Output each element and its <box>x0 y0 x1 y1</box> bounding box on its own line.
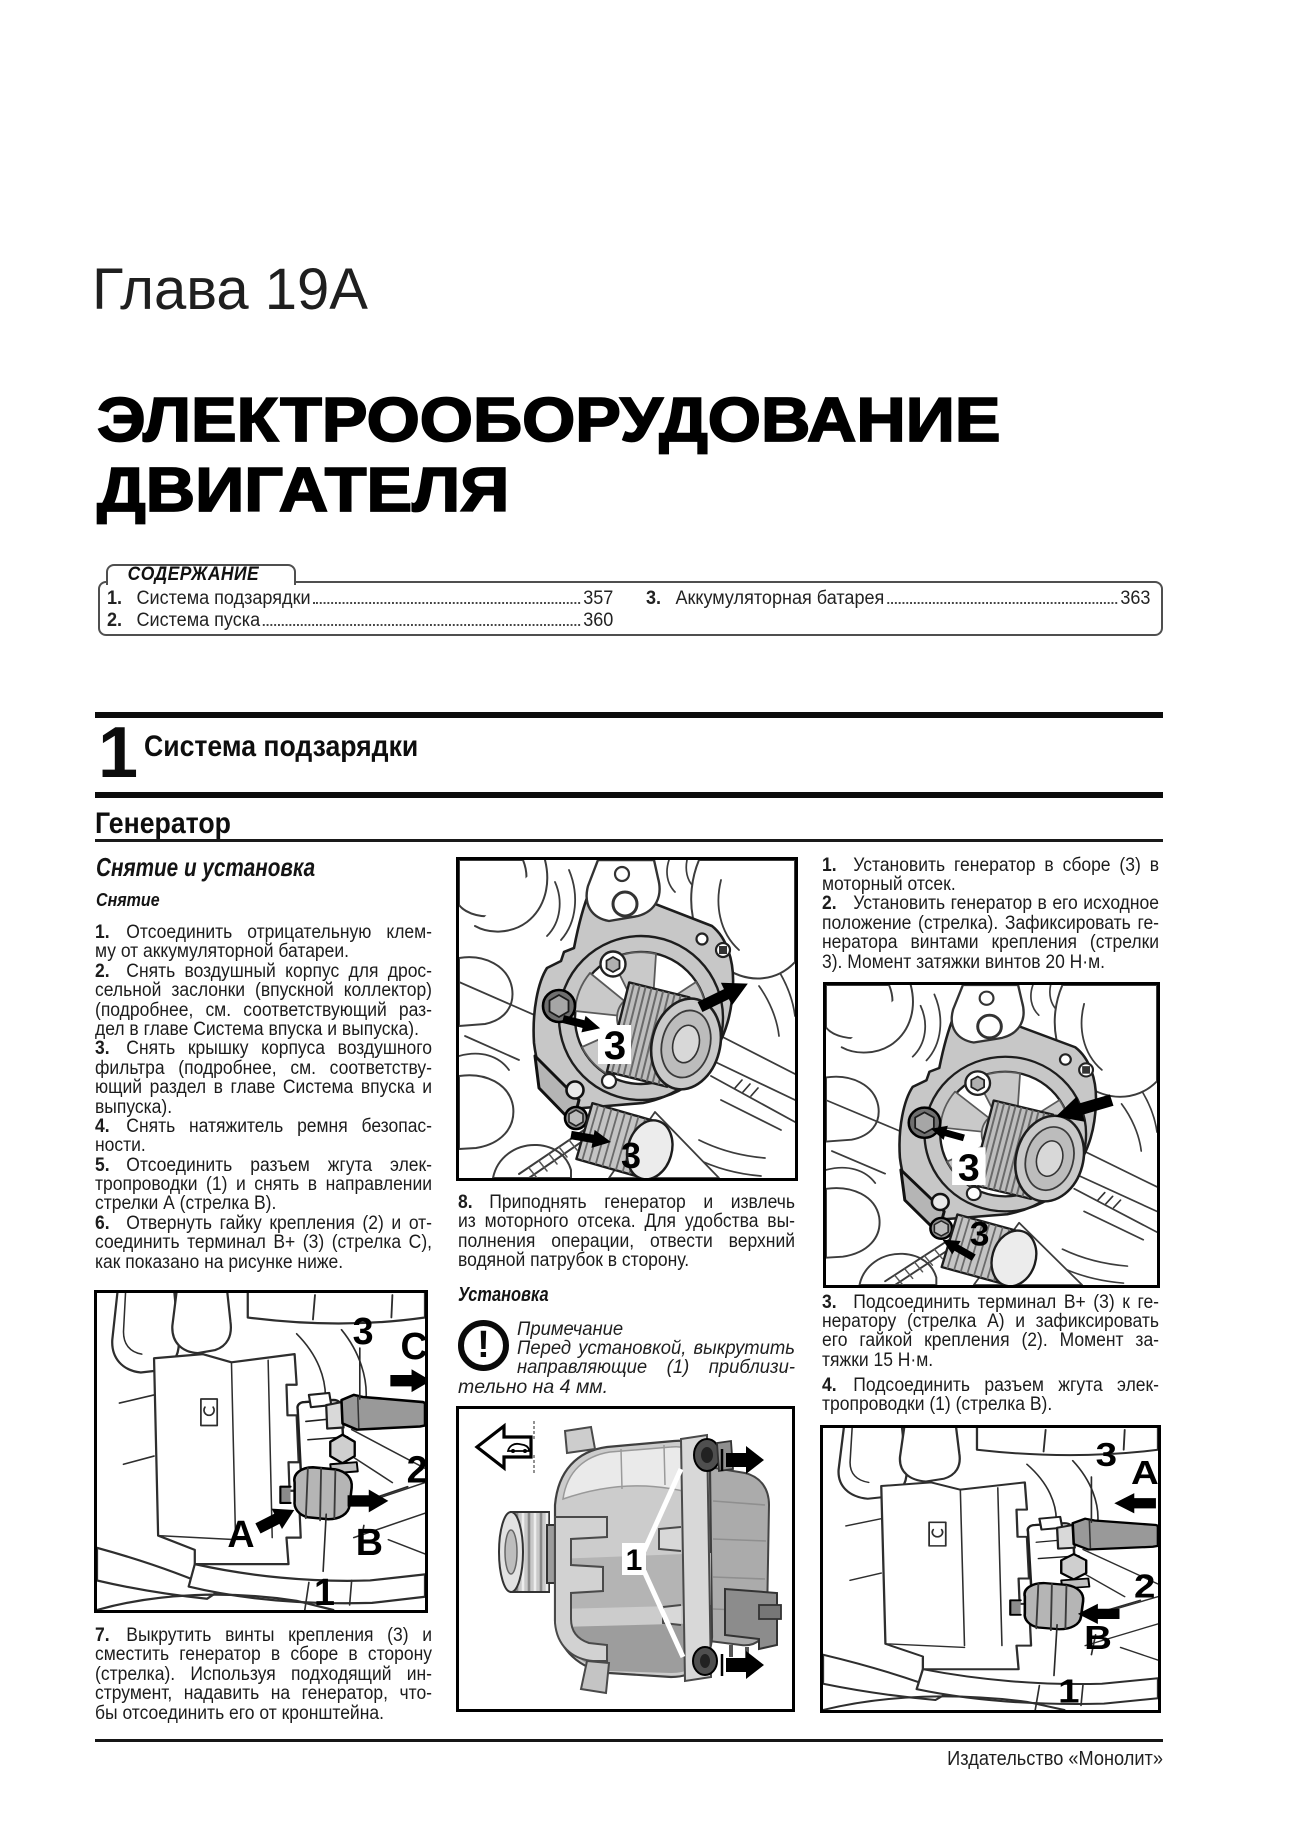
svg-text:B: B <box>1084 1619 1112 1657</box>
svg-text:1: 1 <box>314 1571 335 1610</box>
svg-text:3: 3 <box>604 1024 626 1068</box>
svg-text:1: 1 <box>1058 1672 1079 1710</box>
svg-text:2: 2 <box>407 1449 425 1491</box>
svg-text:2: 2 <box>1134 1567 1155 1605</box>
svg-text:C: C <box>401 1325 425 1367</box>
svg-text:3: 3 <box>621 1135 641 1176</box>
svg-text:3: 3 <box>353 1310 374 1352</box>
svg-text:3: 3 <box>958 1147 980 1189</box>
svg-text:A: A <box>1131 1454 1158 1492</box>
svg-text:3: 3 <box>1096 1435 1117 1473</box>
svg-text:3: 3 <box>970 1216 990 1253</box>
svg-text:1: 1 <box>626 1544 643 1577</box>
svg-text:B: B <box>356 1521 383 1563</box>
svg-text:A: A <box>227 1513 254 1555</box>
